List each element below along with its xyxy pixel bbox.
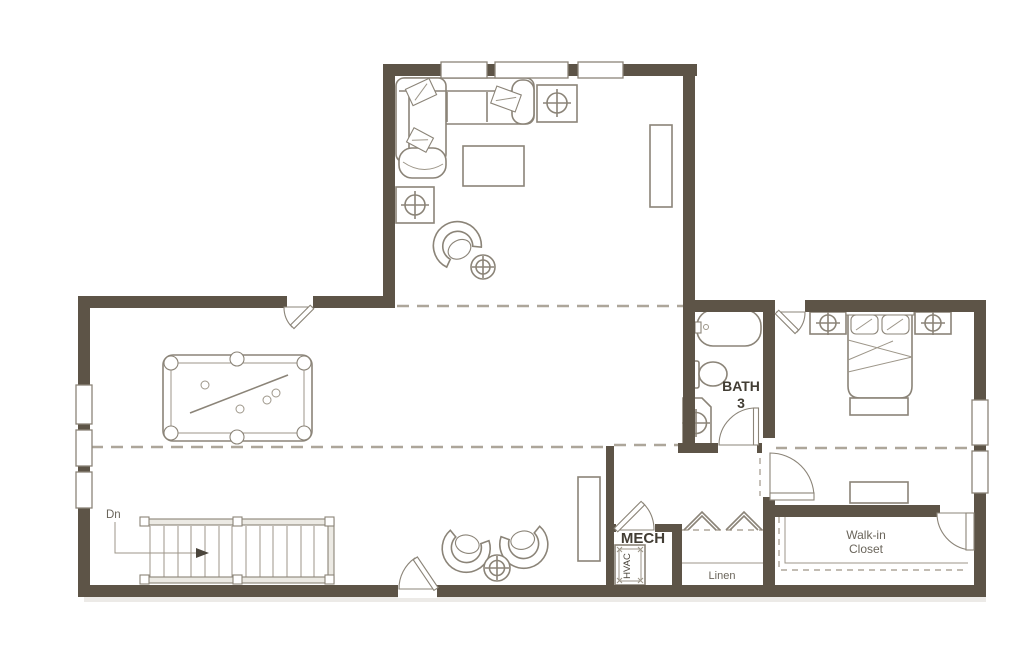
bed bbox=[846, 310, 914, 398]
staircase-down: Dn bbox=[106, 509, 334, 584]
hvac-unit: HVAC bbox=[615, 545, 645, 585]
door-swing-bath bbox=[719, 408, 759, 445]
door-swing-bedroom-top bbox=[775, 310, 805, 333]
bifold-door bbox=[726, 512, 762, 530]
door-swing-exterior bbox=[399, 557, 438, 590]
mech-room: HVAC bbox=[615, 545, 645, 585]
end-table-lamp bbox=[537, 85, 577, 122]
nightstand-lamp bbox=[810, 311, 846, 335]
window bbox=[441, 62, 487, 78]
window bbox=[76, 430, 92, 466]
bifold-door bbox=[684, 512, 720, 530]
walk-in-closet-label-line1: Walk-in bbox=[846, 528, 886, 542]
floor-plan-page: HVAC Linen Walk-in Closet Dn bbox=[0, 0, 1030, 654]
window bbox=[495, 62, 568, 78]
game-room bbox=[163, 352, 600, 581]
door-swing-mech bbox=[614, 501, 654, 531]
linen-closet: Linen bbox=[682, 512, 763, 582]
window bbox=[578, 62, 623, 78]
pool-table bbox=[163, 352, 312, 444]
end-table-lamp bbox=[396, 187, 434, 223]
door-swing-bedroom-entry bbox=[770, 453, 814, 500]
stair-treads bbox=[150, 526, 314, 577]
door-swing-game-room bbox=[284, 305, 314, 328]
window bbox=[972, 400, 988, 445]
bedroom bbox=[810, 310, 951, 503]
media-room bbox=[396, 78, 672, 279]
window bbox=[76, 472, 92, 508]
door-swing-closet bbox=[937, 513, 974, 550]
bathtub bbox=[695, 310, 761, 346]
floor-plan-drawing: HVAC Linen Walk-in Closet Dn bbox=[0, 0, 1030, 654]
tall-cabinet bbox=[578, 477, 600, 561]
linen-label: Linen bbox=[709, 570, 736, 582]
walk-in-closet-label-line2: Closet bbox=[849, 542, 884, 556]
stairs-down-arrow bbox=[115, 522, 209, 558]
bath-label-line1: BATH bbox=[722, 378, 760, 394]
stairs-label: Dn bbox=[106, 509, 121, 521]
hvac-label: HVAC bbox=[622, 553, 633, 579]
window bbox=[972, 451, 988, 493]
bench bbox=[850, 398, 908, 415]
nightstand-lamp bbox=[915, 311, 951, 335]
window bbox=[76, 385, 92, 424]
dresser bbox=[850, 482, 908, 503]
coffee-table bbox=[463, 146, 524, 186]
mech-label: MECH bbox=[621, 530, 665, 547]
wall-shadow bbox=[84, 597, 986, 602]
bath-label-line2: 3 bbox=[737, 395, 745, 411]
chaise-ottoman bbox=[399, 148, 446, 178]
round-side-table-lamp bbox=[471, 255, 495, 279]
media-console bbox=[650, 125, 672, 207]
round-table-lamp bbox=[484, 555, 510, 581]
